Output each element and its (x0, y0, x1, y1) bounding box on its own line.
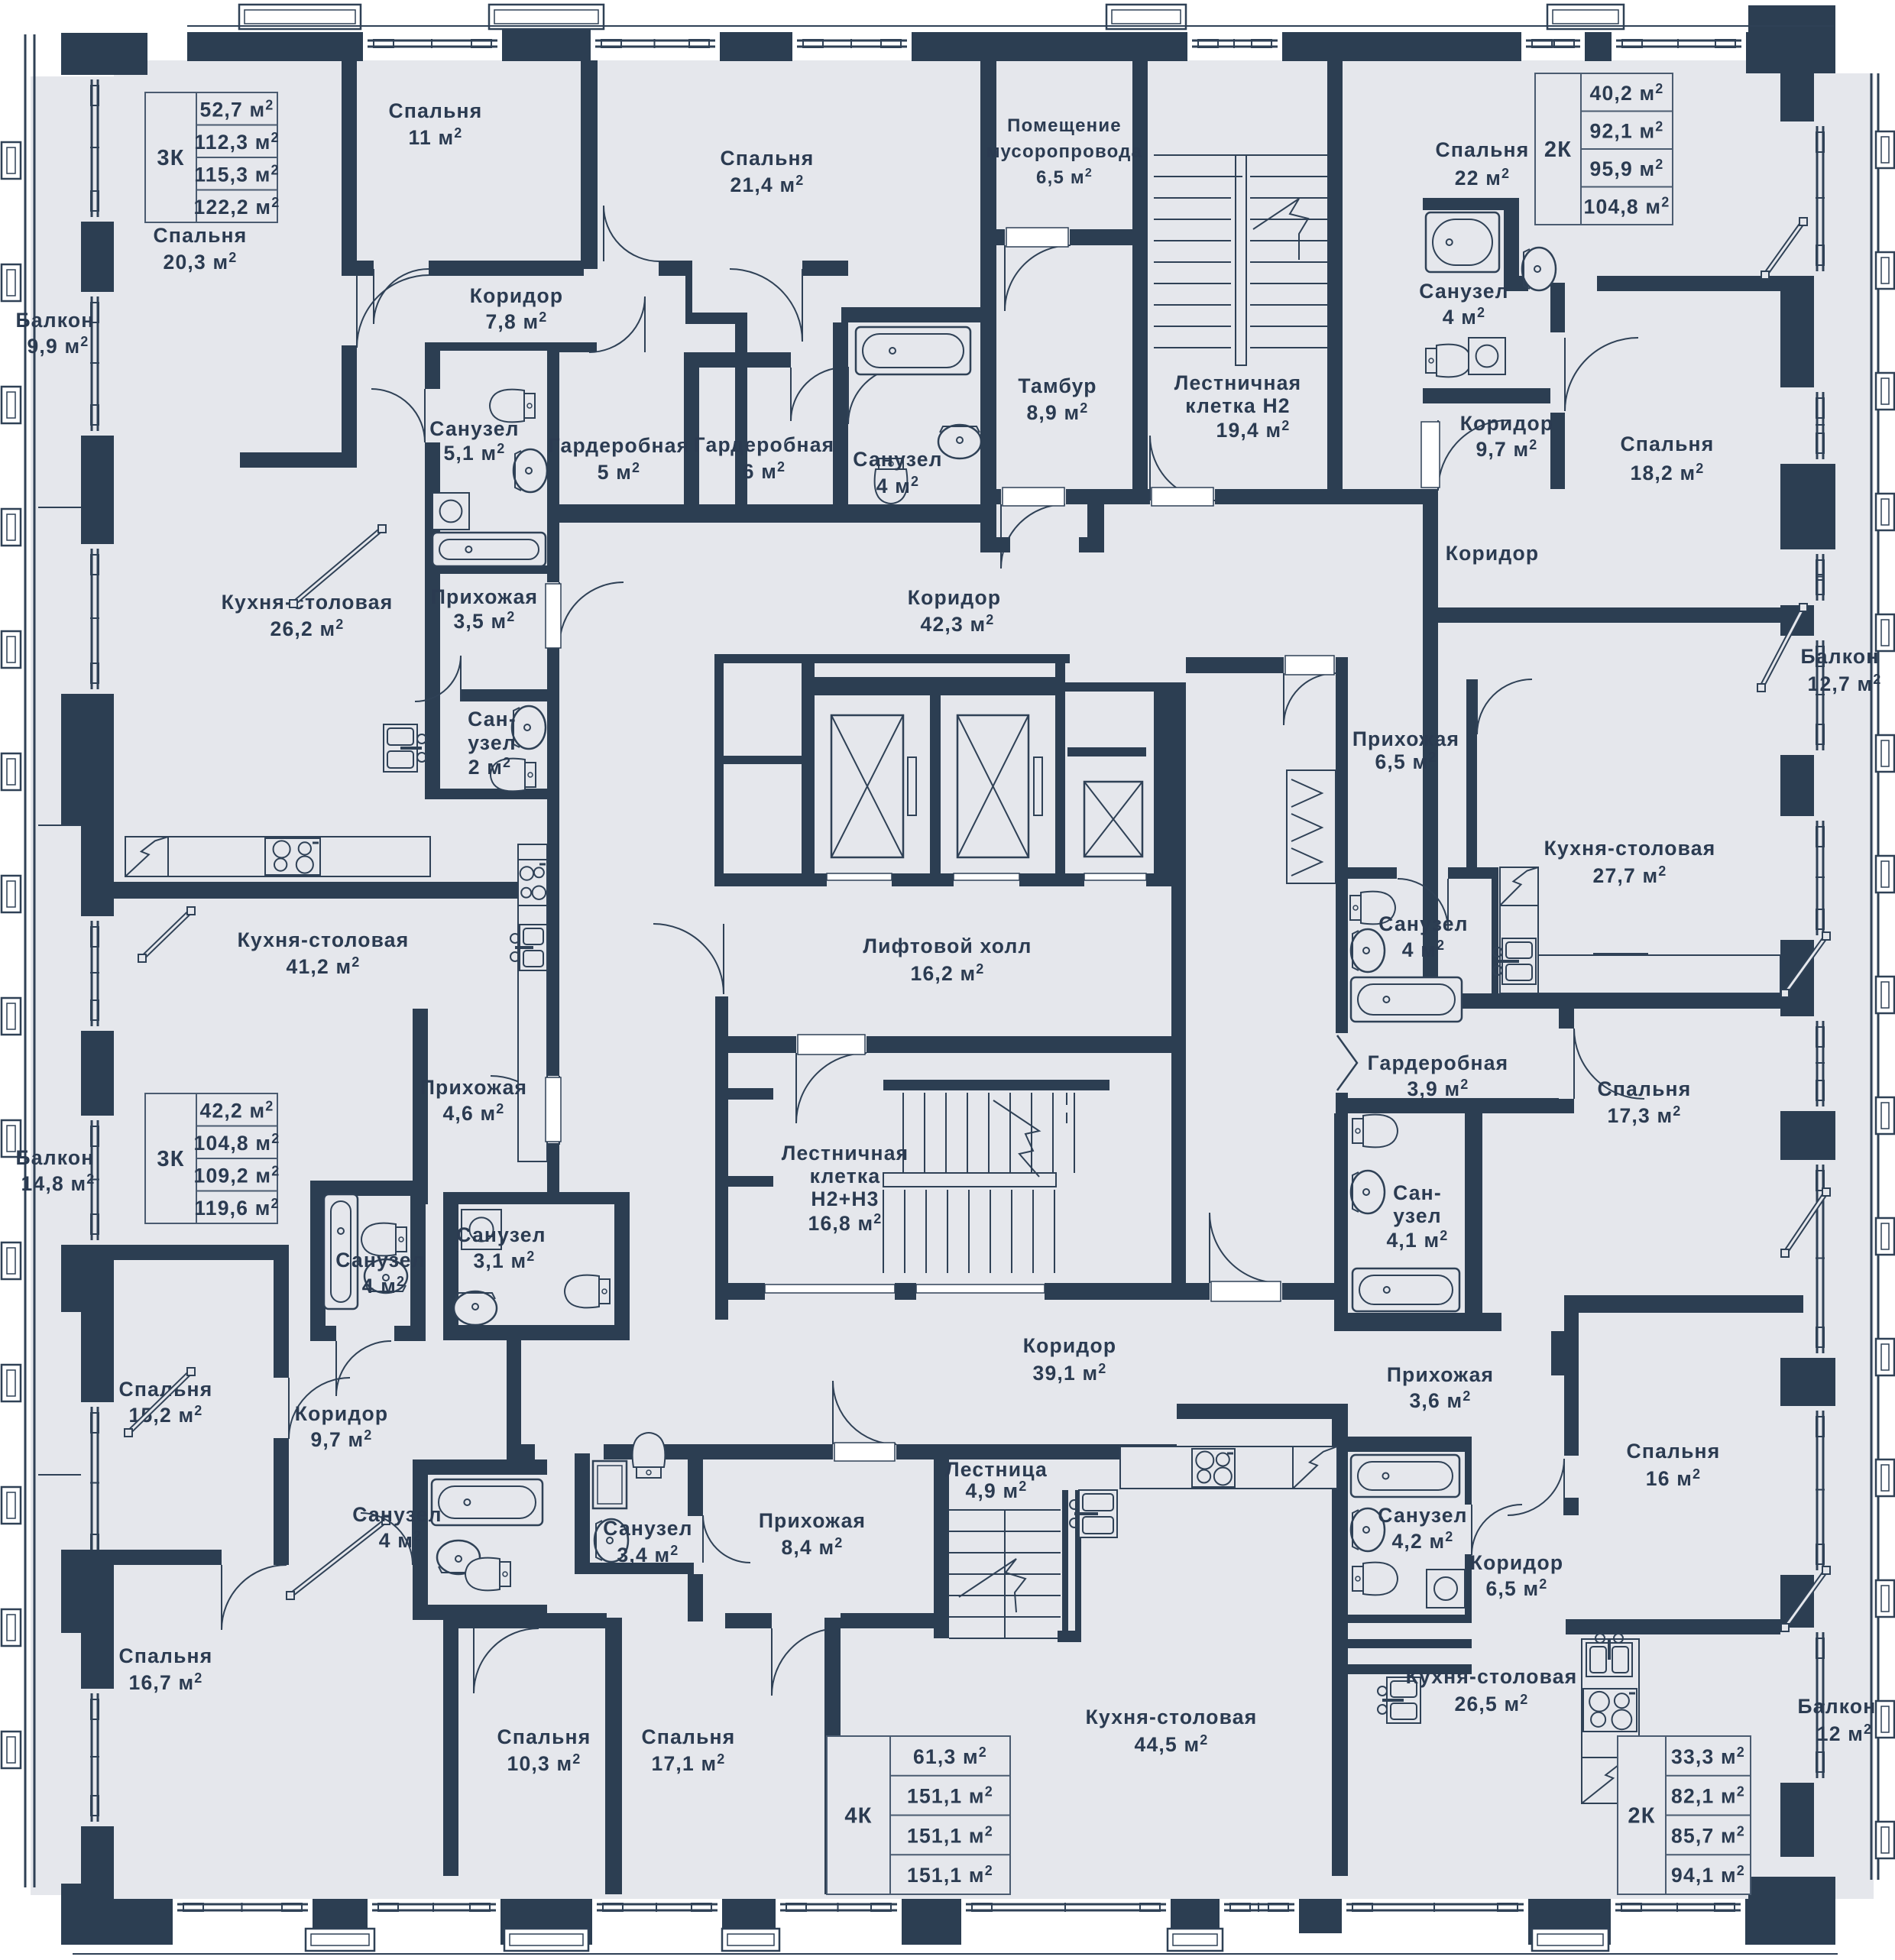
svg-text:Спальня: Спальня (1436, 138, 1530, 161)
svg-text:19,4 м2: 19,4 м2 (1216, 418, 1291, 442)
svg-text:Санузел: Санузел (853, 448, 942, 471)
svg-text:Санузел: Санузел (352, 1503, 442, 1526)
svg-text:6,5 м2: 6,5 м2 (1375, 750, 1437, 773)
svg-text:Прихожая: Прихожая (431, 585, 538, 608)
svg-text:26,2 м2: 26,2 м2 (270, 617, 345, 640)
svg-text:44,5 м2: 44,5 м2 (1135, 1732, 1209, 1756)
svg-text:16,7 м2: 16,7 м2 (129, 1670, 203, 1694)
svg-text:119,6 м2: 119,6 м2 (194, 1196, 279, 1220)
svg-text:Тамбур: Тамбур (1018, 374, 1097, 397)
svg-text:85,7 м2: 85,7 м2 (1671, 1823, 1745, 1847)
svg-text:Спальня: Спальня (642, 1725, 736, 1748)
svg-text:14,8 м2: 14,8 м2 (21, 1171, 96, 1195)
svg-text:Санузел: Санузел (1378, 1504, 1467, 1527)
svg-text:10,3 м2: 10,3 м2 (507, 1751, 581, 1775)
svg-text:3,4 м2: 3,4 м2 (617, 1543, 679, 1566)
svg-text:3,5 м2: 3,5 м2 (453, 609, 515, 633)
svg-text:21,4 м2: 21,4 м2 (730, 173, 805, 196)
svg-text:6,5 м2: 6,5 м2 (1485, 1576, 1547, 1600)
svg-text:клетка: клетка (810, 1165, 881, 1187)
svg-text:Санузел: Санузел (1419, 280, 1508, 303)
svg-text:41,2 м2: 41,2 м2 (287, 954, 361, 978)
svg-text:7,8 м2: 7,8 м2 (485, 309, 547, 333)
svg-text:Санузел: Санузел (603, 1517, 692, 1540)
svg-text:151,1 м2: 151,1 м2 (907, 1863, 993, 1887)
svg-text:115,3 м2: 115,3 м2 (194, 162, 279, 186)
svg-text:3К: 3К (157, 1147, 184, 1171)
svg-text:Балкон: Балкон (1798, 1695, 1877, 1718)
svg-text:104,8 м2: 104,8 м2 (194, 1131, 280, 1155)
svg-text:Спальня: Спальня (389, 99, 483, 122)
svg-text:Балкон: Балкон (1801, 645, 1880, 668)
svg-text:Коридор: Коридор (1460, 412, 1553, 435)
svg-text:Лестничная: Лестничная (782, 1142, 909, 1165)
svg-text:33,3 м2: 33,3 м2 (1671, 1745, 1745, 1768)
svg-text:3,6 м2: 3,6 м2 (1409, 1388, 1471, 1412)
svg-text:82,1 м2: 82,1 м2 (1671, 1784, 1745, 1808)
svg-text:42,3 м2: 42,3 м2 (921, 612, 995, 636)
svg-text:151,1 м2: 151,1 м2 (907, 1784, 993, 1808)
svg-text:Гардеробная: Гардеробная (694, 433, 835, 456)
svg-text:109,2 м2: 109,2 м2 (194, 1163, 280, 1187)
svg-text:Сан-: Сан- (1393, 1181, 1442, 1204)
svg-text:18,2 м2: 18,2 м2 (1631, 461, 1705, 484)
svg-text:Лестница: Лестница (945, 1458, 1048, 1481)
svg-text:5,1 м2: 5,1 м2 (443, 441, 505, 465)
svg-text:2К: 2К (1628, 1804, 1655, 1829)
svg-text:Коридор: Коридор (908, 586, 1001, 609)
svg-text:Коридор: Коридор (1470, 1551, 1563, 1574)
svg-text:4,6 м2: 4,6 м2 (442, 1101, 504, 1125)
svg-text:4,1 м2: 4,1 м2 (1386, 1228, 1448, 1252)
svg-text:мусоропровода: мусоропровода (986, 141, 1142, 162)
svg-text:Прихожая: Прихожая (1387, 1363, 1494, 1386)
svg-text:Коридор: Коридор (470, 284, 563, 307)
svg-text:4К: 4К (844, 1804, 872, 1829)
svg-text:17,1 м2: 17,1 м2 (652, 1751, 726, 1775)
svg-text:клетка Н2: клетка Н2 (1185, 394, 1290, 417)
svg-text:Спальня: Спальня (1598, 1077, 1692, 1100)
svg-text:8,9 м2: 8,9 м2 (1026, 400, 1088, 424)
svg-text:42,2 м2: 42,2 м2 (200, 1098, 274, 1122)
svg-text:3К: 3К (157, 146, 184, 170)
svg-text:Спальня: Спальня (721, 147, 815, 170)
svg-text:20,3 м2: 20,3 м2 (164, 250, 238, 274)
svg-text:Коридор: Коридор (295, 1402, 388, 1425)
svg-text:Санузел: Санузел (456, 1223, 546, 1246)
svg-text:3,1 м2: 3,1 м2 (473, 1249, 535, 1272)
svg-text:112,3 м2: 112,3 м2 (194, 130, 279, 154)
svg-text:Кухня-столовая: Кухня-столовая (238, 928, 410, 951)
svg-text:Спальня: Спальня (154, 224, 248, 247)
svg-text:Кухня-столовая: Кухня-столовая (1086, 1706, 1258, 1728)
svg-text:Коридор: Коридор (1023, 1334, 1116, 1357)
svg-text:17,3 м2: 17,3 м2 (1608, 1103, 1682, 1127)
svg-text:2К: 2К (1544, 138, 1572, 162)
svg-text:Прихожая: Прихожая (1352, 727, 1459, 750)
svg-text:4,2 м2: 4,2 м2 (1391, 1529, 1453, 1553)
svg-text:122,2 м2: 122,2 м2 (194, 195, 280, 219)
svg-text:Прихожая: Прихожая (759, 1509, 866, 1532)
svg-text:Санузел: Санузел (335, 1249, 425, 1272)
svg-text:Н2+Н3: Н2+Н3 (811, 1187, 879, 1210)
svg-text:61,3 м2: 61,3 м2 (913, 1745, 987, 1768)
svg-text:Помещение: Помещение (1007, 115, 1122, 136)
svg-text:Сан-: Сан- (468, 708, 517, 731)
svg-text:Балкон: Балкон (16, 1146, 95, 1169)
svg-text:151,1 м2: 151,1 м2 (907, 1823, 993, 1847)
svg-text:9,9 м2: 9,9 м2 (27, 334, 89, 358)
svg-text:4,9 м2: 4,9 м2 (965, 1479, 1027, 1502)
svg-text:27,7 м2: 27,7 м2 (1593, 863, 1667, 887)
svg-text:16,2 м2: 16,2 м2 (911, 961, 985, 985)
svg-text:9,7 м2: 9,7 м2 (1476, 437, 1537, 461)
svg-text:Кухня-столовая: Кухня-столовая (1406, 1665, 1578, 1688)
svg-text:92,1 м2: 92,1 м2 (1590, 118, 1664, 142)
svg-text:52,7 м2: 52,7 м2 (200, 97, 274, 121)
svg-text:95,9 м2: 95,9 м2 (1590, 157, 1664, 180)
svg-text:Спальня: Спальня (497, 1725, 591, 1748)
svg-text:Гардеробная: Гардеробная (1368, 1051, 1509, 1074)
svg-text:9,7 м2: 9,7 м2 (310, 1427, 372, 1451)
svg-text:Гардеробная: Гардеробная (549, 434, 690, 457)
svg-text:узел: узел (1393, 1204, 1442, 1227)
svg-text:3,9 м2: 3,9 м2 (1407, 1077, 1469, 1100)
svg-text:узел: узел (468, 731, 517, 754)
svg-text:Лестничная: Лестничная (1174, 371, 1302, 394)
svg-text:8,4 м2: 8,4 м2 (781, 1535, 843, 1559)
svg-text:Спальня: Спальня (1627, 1440, 1721, 1463)
svg-text:Прихожая: Прихожая (420, 1076, 527, 1099)
svg-text:16,8 м2: 16,8 м2 (808, 1211, 883, 1235)
svg-text:6,5 м2: 6,5 м2 (1036, 167, 1093, 188)
svg-text:Балкон: Балкон (16, 309, 95, 332)
svg-text:Кухня-столовая: Кухня-столовая (1544, 837, 1716, 860)
svg-text:40,2 м2: 40,2 м2 (1590, 81, 1664, 105)
svg-text:Санузел: Санузел (429, 417, 519, 440)
svg-text:12,7 м2: 12,7 м2 (1808, 672, 1882, 695)
svg-text:Санузел: Санузел (1378, 912, 1468, 935)
svg-text:Спальня: Спальня (119, 1644, 213, 1667)
svg-text:26,5 м2: 26,5 м2 (1455, 1692, 1529, 1715)
svg-text:39,1 м2: 39,1 м2 (1033, 1361, 1107, 1385)
svg-text:Коридор: Коридор (1446, 542, 1539, 565)
svg-text:Лифтовой холл: Лифтовой холл (863, 935, 1032, 957)
svg-text:Спальня: Спальня (1621, 432, 1715, 455)
svg-text:104,8 м2: 104,8 м2 (1584, 194, 1670, 218)
svg-text:94,1 м2: 94,1 м2 (1671, 1863, 1745, 1887)
